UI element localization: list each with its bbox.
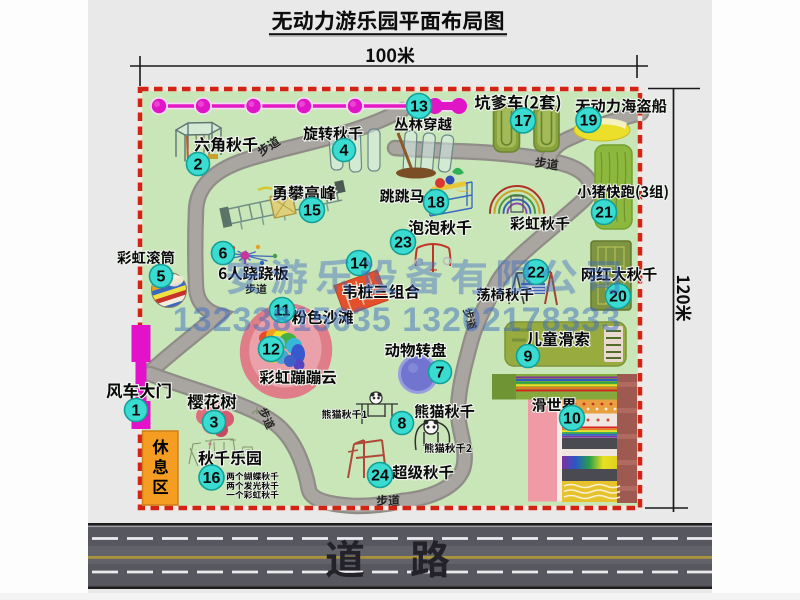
svg-text:17: 17: [514, 113, 532, 130]
svg-text:3: 3: [210, 415, 219, 432]
svg-text:12: 12: [262, 342, 280, 359]
svg-text:2: 2: [194, 157, 203, 174]
svg-text:13233815635 13202178333: 13233815635 13202178333: [173, 301, 621, 339]
svg-text:4: 4: [340, 143, 349, 160]
svg-text:9: 9: [524, 349, 533, 366]
svg-text:13: 13: [410, 99, 428, 116]
svg-text:8: 8: [398, 416, 407, 433]
svg-text:24: 24: [371, 468, 389, 485]
svg-text:5: 5: [157, 269, 166, 286]
svg-text:7: 7: [436, 365, 445, 382]
svg-text:1: 1: [132, 403, 141, 420]
svg-text:15: 15: [303, 203, 321, 220]
svg-text:10: 10: [563, 411, 581, 428]
svg-text:6: 6: [219, 246, 228, 263]
svg-text:14: 14: [350, 256, 368, 273]
svg-text:21: 21: [595, 205, 613, 222]
svg-text:16: 16: [203, 470, 221, 487]
svg-text:19: 19: [580, 113, 598, 130]
svg-text:18: 18: [427, 195, 445, 212]
svg-text:23: 23: [394, 235, 412, 252]
